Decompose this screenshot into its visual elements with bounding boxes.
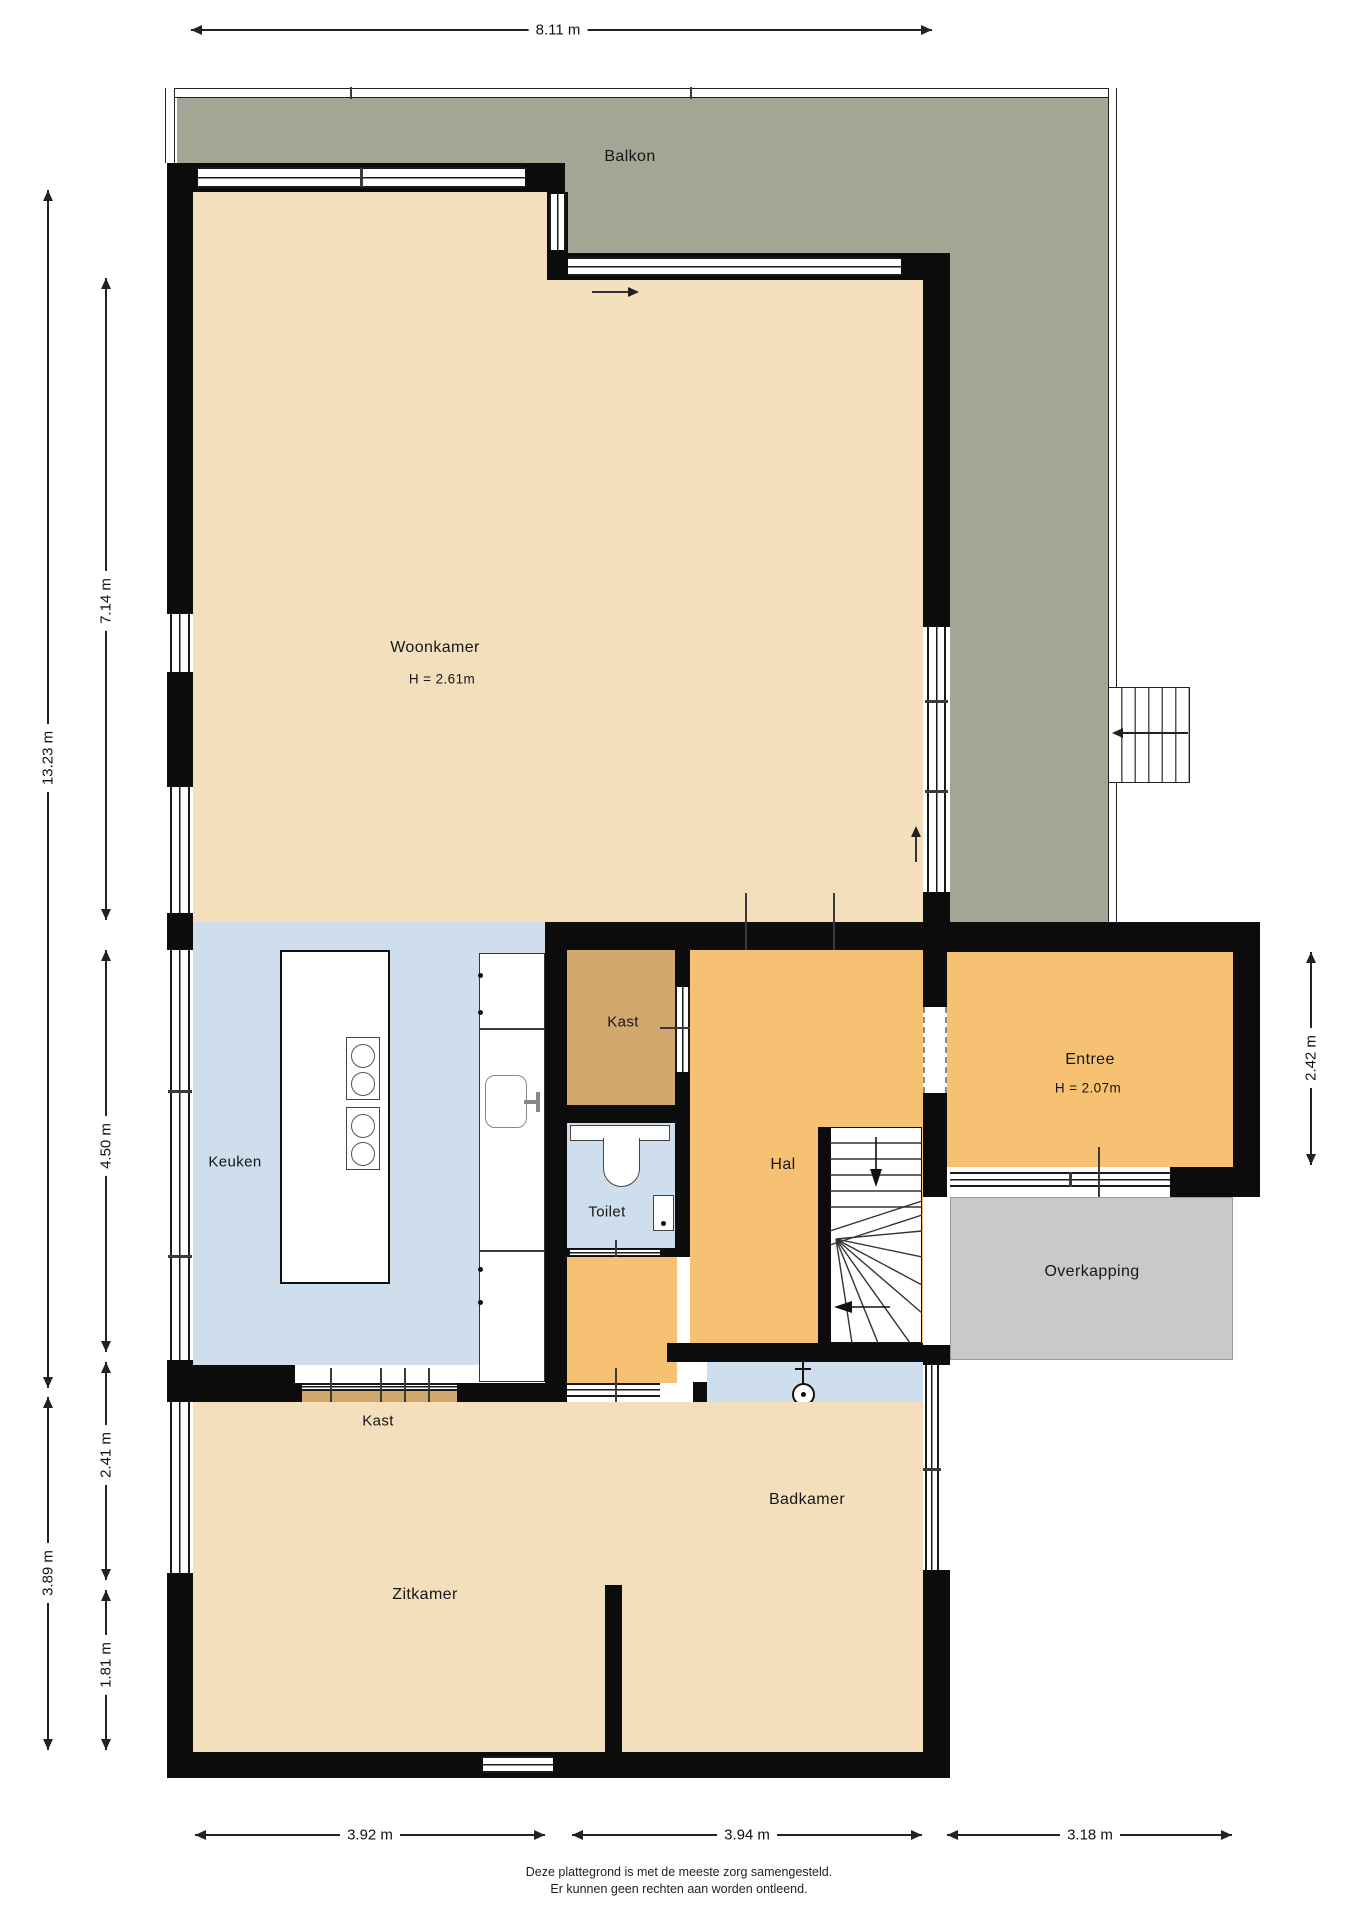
balkon-area-mid bbox=[565, 163, 1108, 253]
dim-arrow bbox=[947, 1830, 958, 1840]
burner-icon bbox=[351, 1114, 375, 1138]
cabinet-handle bbox=[478, 1267, 483, 1272]
wall-stairs-left bbox=[818, 1127, 830, 1343]
room-label-woonkamer: Woonkamer bbox=[390, 639, 480, 657]
window-mullion bbox=[925, 700, 948, 703]
dim-arrow bbox=[572, 1830, 583, 1840]
kitchen-sink bbox=[485, 1075, 527, 1128]
slide-arrow-icon bbox=[628, 287, 639, 297]
dim-arrow bbox=[43, 1377, 53, 1388]
room-label-kast-onder: Kast bbox=[362, 1413, 394, 1430]
room-label-kast-boven: Kast bbox=[607, 1014, 639, 1031]
window-step bbox=[549, 194, 566, 250]
wall-kast-bottom bbox=[545, 1105, 690, 1123]
balkon-railing-right-lower bbox=[1108, 783, 1117, 922]
counter-divider bbox=[480, 1028, 544, 1030]
dim-arrow bbox=[101, 950, 111, 961]
wall-right-lower bbox=[923, 1590, 950, 1778]
window-left-keuken bbox=[170, 950, 190, 1360]
window-left-zitkamer bbox=[170, 1402, 190, 1573]
wall-hal-entree-upper bbox=[923, 950, 947, 1007]
dim-woonkamer-label: 7.14 m bbox=[97, 571, 116, 631]
dim-arrow bbox=[195, 1830, 206, 1840]
railing-mullion bbox=[690, 87, 692, 99]
window-mullion bbox=[1069, 1172, 1072, 1187]
wall-left-mid1 bbox=[167, 672, 193, 787]
hal-entree-door bbox=[923, 1007, 947, 1093]
room-label-keuken: Keuken bbox=[208, 1154, 261, 1171]
dim-arrow bbox=[101, 1739, 111, 1750]
dim-arrow bbox=[43, 1739, 53, 1750]
dim-arrow bbox=[43, 190, 53, 201]
room-label-badkamer: Badkamer bbox=[769, 1491, 845, 1509]
window-top-woonkamer-right bbox=[568, 257, 901, 276]
wall-entree-right bbox=[1233, 930, 1260, 1197]
dim-bottom-right-label: 3.18 m bbox=[1060, 1826, 1120, 1845]
dim-entree-label: 2.42 m bbox=[1302, 1028, 1321, 1088]
dim-arrow bbox=[191, 25, 202, 35]
dim-left-total-label: 13.23 m bbox=[39, 724, 58, 792]
room-label-toilet: Toilet bbox=[588, 1204, 625, 1221]
kitchen-counter bbox=[479, 953, 545, 1382]
balcony-door-arrow-icon bbox=[911, 826, 921, 837]
slide-arrow-shaft bbox=[592, 291, 630, 293]
room-label-balkon: Balkon bbox=[604, 148, 655, 166]
window-left-woonkamer-2 bbox=[170, 787, 190, 913]
dim-keuken-label: 4.50 m bbox=[97, 1116, 116, 1176]
toilet-sink-drain bbox=[661, 1221, 666, 1226]
dim-arrow bbox=[101, 1362, 111, 1373]
floorplan: Balkon Woonkamer H = 2.61m Keuken Kast T… bbox=[0, 0, 1358, 1920]
shower-stem-bar bbox=[795, 1368, 811, 1370]
window-left-woonkamer-1 bbox=[170, 614, 190, 672]
wall-keuken-bottom-right bbox=[465, 1383, 567, 1402]
dim-arrow bbox=[101, 1569, 111, 1580]
dim-arrow bbox=[43, 1397, 53, 1408]
dim-zitkamer-lower-label: 1.81 m bbox=[97, 1635, 116, 1695]
kitchen-tap-icon bbox=[536, 1092, 540, 1112]
dim-arrow bbox=[101, 278, 111, 289]
room-label-hal: Hal bbox=[770, 1156, 795, 1174]
wall-left-lower bbox=[167, 1573, 193, 1778]
dim-bottom-left-label: 3.92 m bbox=[340, 1826, 400, 1845]
dim-arrow bbox=[101, 1590, 111, 1601]
wall-left-corner-keuken bbox=[167, 913, 193, 950]
staircase bbox=[830, 1127, 922, 1343]
hal-corridor bbox=[567, 1257, 677, 1383]
window-bottom-zitkamer bbox=[483, 1756, 553, 1773]
toilet-bowl-icon bbox=[603, 1138, 640, 1187]
balkon-railing-left bbox=[165, 88, 175, 163]
room-woonkamer-right bbox=[547, 280, 923, 922]
wall-kast-right-upper bbox=[675, 963, 690, 987]
window-mullion bbox=[168, 1090, 192, 1093]
window-right-woonkamer bbox=[927, 627, 946, 892]
cabinet-handle bbox=[478, 1300, 483, 1305]
disclaimer-line-1: Deze plattegrond is met de meeste zorg s… bbox=[0, 1865, 1358, 1879]
wall-kast-right-lower bbox=[675, 1072, 690, 1105]
wall-bottom bbox=[167, 1752, 950, 1778]
balkon-railing-right-upper bbox=[1108, 88, 1117, 687]
dim-arrow bbox=[534, 1830, 545, 1840]
dim-arrow bbox=[101, 909, 111, 920]
dim-arrow bbox=[911, 1830, 922, 1840]
burner-icon bbox=[351, 1044, 375, 1068]
wall-right-woonkamer-upper bbox=[923, 253, 950, 627]
wall-entree-bottom-corner bbox=[1170, 1167, 1260, 1197]
shower-stem bbox=[802, 1362, 804, 1384]
dim-zitkamer-upper-label: 2.41 m bbox=[97, 1425, 116, 1485]
shower-head-center bbox=[801, 1392, 806, 1397]
cabinet-handle bbox=[478, 1010, 483, 1015]
entree-front-window bbox=[950, 1172, 1170, 1187]
wall-hal-entree-lower bbox=[923, 1093, 947, 1197]
wall-stairs-bottom bbox=[667, 1343, 923, 1362]
balkon-area-right bbox=[950, 253, 1108, 922]
dim-arrow bbox=[1306, 952, 1316, 963]
window-mullion bbox=[168, 1255, 192, 1258]
dim-arrow bbox=[1221, 1830, 1232, 1840]
window-mullion bbox=[925, 790, 948, 793]
room-label-zitkamer: Zitkamer bbox=[392, 1586, 457, 1604]
wall-keuken-bottom-left bbox=[167, 1365, 295, 1402]
exterior-stairs-walkline bbox=[1122, 732, 1188, 734]
dim-top-label: 8.11 m bbox=[529, 21, 588, 40]
room-woonkamer bbox=[193, 192, 547, 922]
dim-arrow bbox=[1306, 1154, 1316, 1165]
corridor-zitkamer-door bbox=[567, 1383, 660, 1397]
wall-kast-left bbox=[545, 950, 567, 1402]
burner-icon bbox=[351, 1072, 375, 1096]
wall-zitkamer-stub bbox=[605, 1585, 622, 1752]
cabinet-handle bbox=[478, 973, 483, 978]
dim-bottom-middle-label: 3.94 m bbox=[717, 1826, 777, 1845]
burner-icon bbox=[351, 1142, 375, 1166]
room-height-woonkamer: H = 2.61m bbox=[409, 672, 475, 687]
badkamer-door-gap bbox=[677, 1362, 707, 1382]
wall-badkamer-right-corner-top bbox=[923, 1345, 950, 1365]
room-height-entree: H = 2.07m bbox=[1055, 1081, 1121, 1096]
room-label-entree: Entree bbox=[1065, 1051, 1115, 1069]
balkon-railing-top bbox=[165, 88, 1117, 98]
disclaimer-line-2: Er kunnen geen rechten aan worden ontlee… bbox=[0, 1882, 1358, 1896]
kast-door bbox=[675, 987, 690, 1072]
dim-arrow bbox=[921, 25, 932, 35]
balcony-door-arrow-shaft bbox=[915, 836, 917, 862]
counter-divider bbox=[480, 1250, 544, 1252]
dim-zitkamer-total-label: 3.89 m bbox=[39, 1543, 58, 1603]
railing-mullion bbox=[350, 87, 352, 99]
exterior-stairs-arrow bbox=[1112, 728, 1123, 738]
area-label-overkapping: Overkapping bbox=[1044, 1263, 1139, 1281]
window-mullion bbox=[360, 168, 363, 187]
wall-left-upper bbox=[167, 163, 193, 614]
dim-arrow bbox=[101, 1341, 111, 1352]
wall-toilet-right bbox=[675, 1123, 690, 1257]
